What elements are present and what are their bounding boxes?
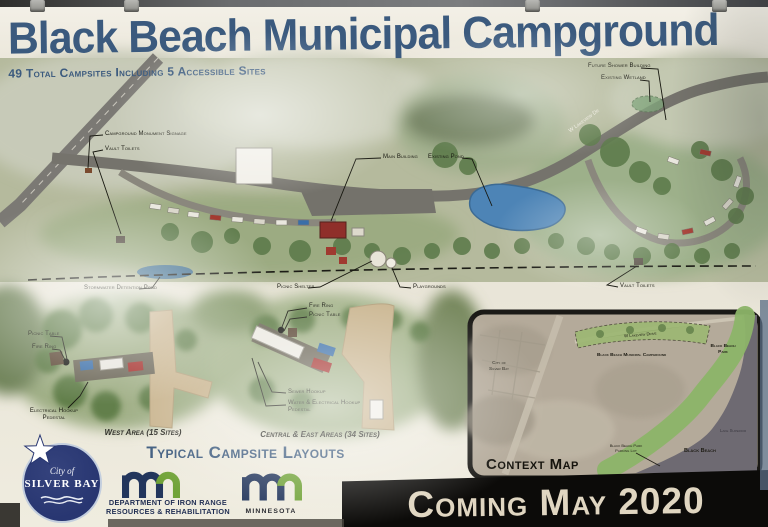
silver-bay-logo-cityof: City of	[22, 466, 102, 476]
label-main-building: Main Building	[383, 154, 418, 161]
label-existing-pond: Existing Pond	[428, 154, 464, 161]
label-monument-signage: Campground Monument Signage	[105, 131, 187, 138]
vault-toilet-east-shape	[634, 258, 643, 265]
central-car-white-shape	[370, 400, 383, 419]
monument-sign-shape	[85, 168, 92, 173]
wetland-shape	[632, 96, 664, 112]
storage-building	[236, 148, 272, 184]
coming-soon-banner-text: Coming May 2020	[350, 479, 763, 527]
silver-bay-logo-name: SILVER BAY	[22, 478, 102, 490]
label-stormwater-pond: Stormwater Detention Pond	[84, 285, 157, 292]
parking-lot	[300, 189, 436, 216]
ctx-parking-label: Black Beach Park Parking Lot	[608, 443, 644, 453]
main-building-shape	[320, 222, 346, 238]
poster-title: Black Beach Municipal Campground	[8, 4, 721, 65]
central-label-fire-ring: Fire Ring	[309, 303, 333, 310]
west-rv-shape	[100, 358, 124, 370]
binder-clip-icon	[30, 0, 45, 12]
label-vault-toilets-east: Vault Toilets	[620, 283, 655, 290]
mn-logo-minnesota-icon	[242, 463, 302, 503]
dept-line1: DEPARTMENT OF IRON RANGE	[100, 498, 236, 507]
playground-shape-2	[339, 257, 347, 264]
wall-top-strip	[0, 0, 768, 7]
label-playgrounds: Playgrounds	[413, 284, 446, 291]
silver-bay-wave-icon	[40, 494, 84, 506]
west-car-shape	[128, 361, 144, 372]
label-future-shower: Future Shower Building	[588, 63, 651, 70]
central-area-caption: Central & East Areas (34 Sites)	[250, 430, 390, 439]
dept-iron-range-text: DEPARTMENT OF IRON RANGE RESOURCES & REH…	[100, 498, 236, 516]
binder-clip-icon	[525, 0, 540, 12]
ctx-lake-label: Lake Superior	[720, 428, 746, 433]
central-label-picnic-table: Picnic Table	[309, 312, 341, 319]
label-vault-toilets-west: Vault Toilets	[105, 146, 140, 153]
shadow-bottom-left	[0, 503, 20, 527]
context-map-title: Context Map	[486, 456, 579, 473]
west-label-electrical-line1: Electrical Hookup	[16, 408, 92, 415]
label-existing-wetland: Existing Wetland	[601, 75, 646, 82]
west-area-caption: West Area (15 Sites)	[83, 428, 203, 437]
minnesota-text: MINNESOTA	[240, 508, 302, 515]
mn-logo-iron-range-icon	[122, 462, 180, 500]
west-label-fire-ring: Fire Ring	[32, 344, 56, 351]
ctx-city-label: City of Silver Bay	[484, 361, 514, 373]
west-label-picnic-table: Picnic Table	[28, 331, 60, 338]
picnic-shelter-shape-2	[386, 258, 396, 268]
playground-shape-1	[326, 247, 336, 255]
binder-clip-icon	[712, 0, 727, 12]
picnic-shelter-shape	[370, 251, 386, 267]
central-label-water-electrical-line2: Pedestal	[288, 407, 360, 414]
west-label-electrical: Electrical Hookup Pedestal	[16, 408, 92, 422]
shadow-bottom-middle	[108, 519, 344, 527]
central-label-water-electrical: Water & Electrical Hookup Pedestal	[288, 400, 360, 414]
central-tent-pad	[288, 328, 297, 337]
ctx-park-label: Black Beach Park	[706, 344, 740, 356]
binder-clip-icon	[124, 0, 139, 12]
central-label-sewer: Sewer Hookup	[288, 389, 326, 396]
ctx-campground-label: Black Beach Municipal Campground	[597, 353, 666, 359]
central-label-water-electrical-line1: Water & Electrical Hookup	[288, 400, 360, 407]
west-picnic-table-shape	[80, 360, 94, 370]
west-label-electrical-line2: Pedestal	[16, 415, 92, 422]
stormwater-pond-shape	[137, 265, 193, 279]
ctx-beach-label: Black Beach	[684, 448, 716, 455]
ctx-city-label-line2: Silver Bay	[484, 367, 514, 373]
dept-line2: RESOURCES & REHABILITATION	[100, 507, 236, 516]
ctx-park-label-line2: Park	[706, 350, 740, 356]
service-building	[352, 228, 364, 236]
ctx-parking-label-line2: Parking Lot	[608, 448, 644, 453]
wall-edge-right	[760, 300, 768, 490]
campsite-layouts-heading: Typical Campsite Layouts	[118, 443, 373, 463]
central-fire-ring-shape	[278, 327, 284, 333]
poster-photo: Black Beach Municipal Campground 49 Tota…	[0, 0, 768, 527]
vault-toilet-west-shape	[116, 236, 125, 243]
label-picnic-shelter: Picnic Shelter	[277, 284, 314, 291]
